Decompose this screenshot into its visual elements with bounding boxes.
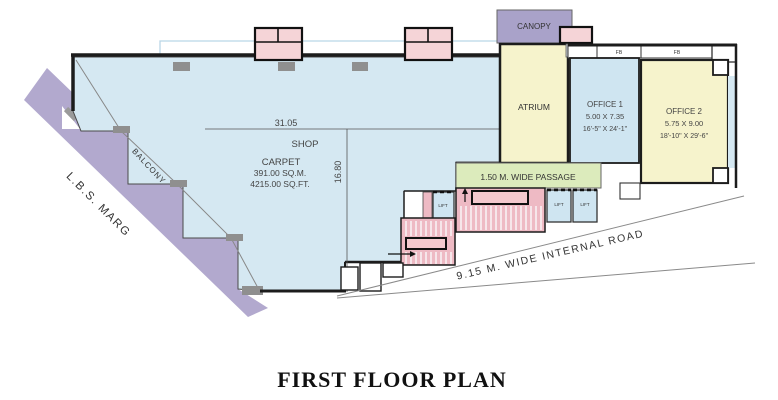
- small-room-3: [383, 263, 403, 277]
- office1-size-ft: 16'-5" X 24'-1": [583, 126, 628, 133]
- office2-corner-notch: [713, 60, 728, 75]
- office1-area: [570, 58, 639, 163]
- vent-box-2: [405, 28, 452, 60]
- office2-size-m: 5.75 X 9.00: [665, 119, 703, 128]
- lift-2: LIFT: [547, 190, 571, 222]
- lift-label-2: LIFT: [554, 202, 564, 207]
- office2-corner-notch: [713, 168, 728, 183]
- column-tick: [173, 62, 190, 71]
- column-tick: [352, 62, 368, 71]
- column-tick: [278, 62, 295, 71]
- fb-label-2: FB: [674, 50, 681, 56]
- stair-core-2: [401, 218, 455, 265]
- shop-area-sqm: 391.00 SQ.M.: [254, 168, 306, 178]
- lift-label-3: LIFT: [580, 202, 590, 207]
- stair-landing-1: [472, 191, 528, 204]
- office2-label: OFFICE 2: [666, 107, 703, 116]
- small-room-1: [341, 267, 358, 290]
- column-tick: [113, 126, 130, 133]
- office2-blue-strip: [728, 76, 735, 168]
- floor-plan-svg: 31.05 16.80 SHOP CARPET 391.00 SQ.M. 421…: [0, 0, 778, 400]
- duct-box: [560, 27, 592, 43]
- column-tick: [170, 180, 187, 187]
- dim-depth-label: 16.80: [333, 161, 343, 184]
- column-tick: [242, 286, 263, 295]
- fb-label-1: FB: [616, 50, 623, 56]
- shop-carpet-label: CARPET: [262, 157, 301, 168]
- vent-box-1: [255, 28, 302, 60]
- lift-3: LIFT: [573, 190, 597, 222]
- column-tick: [226, 234, 243, 241]
- canopy-label: CANOPY: [517, 22, 551, 31]
- floor-plan-image: 31.05 16.80 SHOP CARPET 391.00 SQ.M. 421…: [0, 0, 778, 400]
- lift-1: LIFT: [433, 192, 454, 219]
- service-box: [620, 183, 640, 199]
- small-room-2: [360, 263, 381, 291]
- office1-size-m: 5.00 X 7.35: [586, 112, 624, 121]
- lift-label-1: LIFT: [438, 203, 448, 208]
- passage-label: 1.50 M. WIDE PASSAGE: [480, 172, 576, 182]
- shop-area-sqft: 4215.00 SQ.FT.: [250, 179, 310, 189]
- stair-core-1: [456, 188, 545, 232]
- office1-label: OFFICE 1: [587, 100, 624, 109]
- plan-title: FIRST FLOOR PLAN: [277, 367, 507, 392]
- stair-landing-2: [406, 238, 446, 249]
- office2-size-ft: 18'-10" X 29'-6": [660, 133, 709, 140]
- atrium-label: ATRIUM: [518, 102, 550, 112]
- shop-label: SHOP: [292, 139, 319, 150]
- dim-width-label: 31.05: [275, 118, 298, 128]
- lift-side-strip: [423, 192, 432, 219]
